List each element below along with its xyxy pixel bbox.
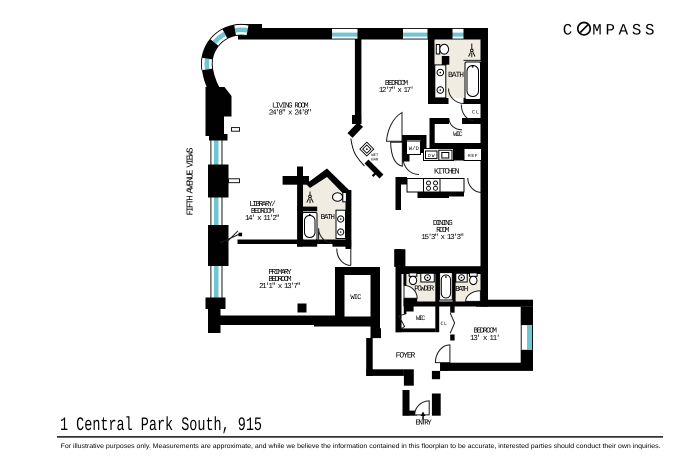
svg-text:BATH: BATH <box>448 71 464 80</box>
svg-text:BATH: BATH <box>321 214 335 222</box>
svg-text:15'3" x 13'3": 15'3" x 13'3" <box>421 233 464 242</box>
svg-text:1 Central Park South, 915: 1 Central Park South, 915 <box>60 414 262 436</box>
svg-text:12'7" x 17': 12'7" x 17' <box>379 86 415 95</box>
svg-text:24'8" x 24'8": 24'8" x 24'8" <box>269 109 312 118</box>
svg-text:For illustrative purposes only: For illustrative purposes only. Measurem… <box>61 443 661 450</box>
svg-text:FIFTH AVENUE VIEWS: FIFTH AVENUE VIEWS <box>186 148 196 216</box>
svg-text:CL: CL <box>472 109 479 115</box>
svg-text:DW: DW <box>428 154 435 159</box>
svg-text:REF: REF <box>468 154 478 159</box>
svg-text:13' x 11': 13' x 11' <box>470 334 501 343</box>
svg-text:FOYER: FOYER <box>396 352 416 361</box>
svg-text:MPASS: MPASS <box>592 21 654 39</box>
svg-text:KITCHEN: KITCHEN <box>434 168 460 177</box>
svg-text:14' x 11'2": 14' x 11'2" <box>245 214 280 223</box>
svg-text:WIC: WIC <box>350 294 362 302</box>
svg-text:ENTRY: ENTRY <box>415 419 432 427</box>
svg-text:BATH: BATH <box>455 286 468 294</box>
svg-text:21'1" x 13'7": 21'1" x 13'7" <box>259 282 301 291</box>
svg-text:CL: CL <box>441 321 448 327</box>
svg-text:WIC: WIC <box>416 315 426 323</box>
svg-text:BAR: BAR <box>371 158 379 163</box>
svg-text:W/D: W/D <box>409 145 420 152</box>
svg-text:WIC: WIC <box>453 131 463 139</box>
svg-text:POWDER: POWDER <box>414 285 434 294</box>
svg-text:WET: WET <box>371 153 379 158</box>
svg-text:C: C <box>563 21 572 39</box>
